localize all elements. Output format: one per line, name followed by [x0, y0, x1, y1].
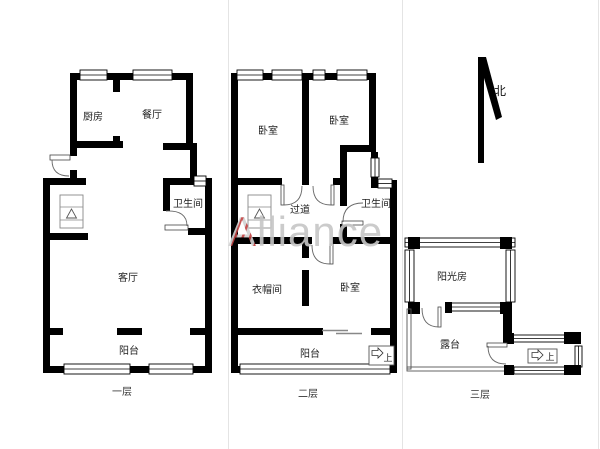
floor1-entry-door — [50, 155, 70, 176]
floorplan-page: 厨房 餐厅 卫生间 客厅 阳台 一层 — [0, 0, 600, 449]
room-label-terrace: 露台 — [440, 338, 460, 351]
floorplan-canvas: 厨房 餐厅 卫生间 客厅 阳台 一层 — [0, 0, 600, 449]
north-label: 北 — [494, 84, 506, 98]
floor1-bathroom-door — [165, 211, 188, 230]
room-label-bedroom-south: 卧室 — [340, 281, 360, 294]
floor1-label: 一层 — [112, 386, 132, 398]
room-label-balcony1: 阳台 — [119, 344, 139, 357]
room-label-balcony2: 阳台 — [300, 347, 320, 360]
watermark: A lliance — [228, 208, 383, 255]
floor3-sunroom-door — [422, 307, 441, 327]
room-label-kitchen: 厨房 — [83, 110, 103, 123]
watermark-letter-a: A — [228, 208, 256, 255]
floor1-staircase — [60, 195, 83, 228]
floor2-stair-up-marker: 上 — [369, 346, 394, 365]
room-label-sunroom: 阳光房 — [437, 270, 467, 283]
room-label-bedroom-left: 卧室 — [258, 124, 278, 137]
floor2-bedroom1-door — [281, 185, 302, 205]
floor2-bedroom2-door — [313, 185, 334, 205]
floor3-label: 三层 — [470, 389, 490, 401]
floor3-stairroom-door — [487, 343, 507, 364]
floor2-stair-up-label: 上 — [383, 353, 392, 363]
floor1-plan: 厨房 餐厅 卫生间 客厅 阳台 一层 — [43, 70, 212, 398]
north-arrow: 北 — [478, 57, 506, 163]
watermark-text: lliance — [257, 208, 383, 255]
floor2-sliding-door — [322, 331, 362, 334]
room-label-bedroom-right: 卧室 — [329, 114, 349, 127]
floor3-stair-up-label: 上 — [545, 352, 554, 362]
room-label-dining: 餐厅 — [142, 108, 162, 121]
floor3-sunroom-posts — [408, 237, 512, 343]
room-label-bathroom1: 卫生间 — [173, 197, 203, 210]
floor3-plan: 上 阳光房 露台 三层 — [405, 237, 582, 401]
floor2-label: 二层 — [298, 388, 318, 400]
room-label-living: 客厅 — [118, 271, 138, 284]
room-label-cloakroom: 衣帽间 — [252, 283, 282, 296]
floor3-stair-up-marker: 上 — [528, 349, 557, 363]
